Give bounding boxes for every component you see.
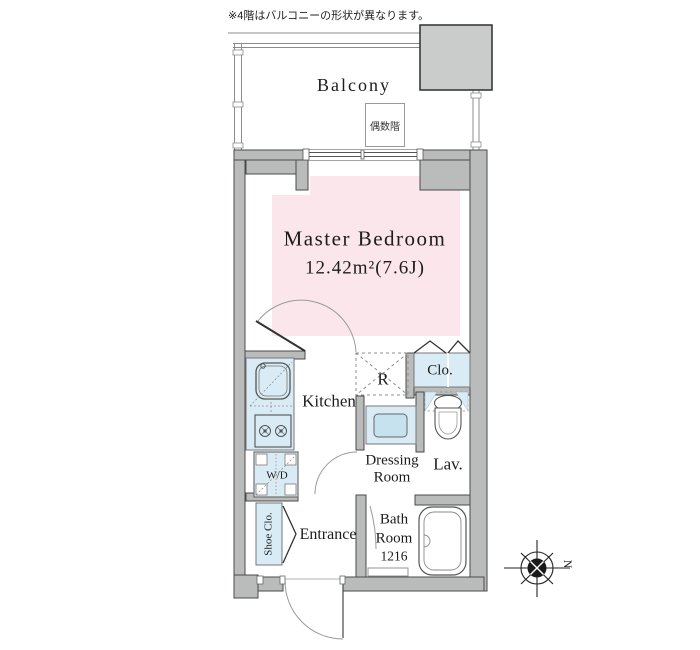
bedroom-window	[303, 149, 423, 160]
wall-entrance-bath	[356, 495, 366, 577]
master-bedroom-floor	[272, 176, 460, 336]
wall-hall-dressing	[356, 396, 364, 450]
compass-north-label: N	[561, 560, 575, 569]
balcony-floor-note: 偶数階	[370, 118, 400, 133]
balcony-utility-box	[420, 25, 492, 90]
bath-room-size: 1216	[381, 549, 408, 563]
dressing-room-label-line2: Room	[374, 471, 411, 486]
balcony-floor-note-box: 偶数階	[365, 103, 405, 147]
kitchen-counter	[246, 358, 294, 450]
wall-left	[234, 150, 245, 598]
wall-bath-north	[415, 495, 470, 505]
plan-note: ※4階はバルコニーの形状が異なります。	[228, 7, 429, 23]
bath-room-label-line1: Bath	[380, 513, 408, 528]
master-bedroom-area: 12.42m²(7.6J)	[305, 259, 425, 278]
toilet	[435, 396, 462, 440]
washbasin	[366, 406, 416, 444]
closet-bifold-doors	[414, 341, 470, 353]
shoe-closet-label: Shoe Clo.	[264, 512, 275, 555]
floor-plan: N ※4階はバルコニーの形状が異なります。 Balcony 偶数階 Master…	[0, 0, 700, 650]
lavatory-fixtures	[425, 392, 468, 439]
wall-r-closet	[406, 353, 414, 398]
balcony-label: Balcony	[317, 76, 391, 94]
shoe-closet-door-mark	[283, 506, 296, 563]
dressing-room-label-line1: Dressing	[365, 454, 418, 469]
lavatory-label: Lav.	[433, 456, 463, 473]
wall-bottom-left-block	[234, 575, 258, 598]
master-bedroom-label: Master Bedroom	[284, 229, 447, 250]
wall-step-top-left	[296, 160, 308, 190]
dressing-room-door	[315, 452, 357, 494]
bath-room-label-line2: Room	[376, 532, 413, 547]
wall-right	[470, 150, 487, 591]
entrance-label: Entrance	[300, 527, 357, 543]
compass: N	[504, 540, 575, 597]
wall-dressing-lav	[416, 392, 424, 452]
refrigerator-label: R	[377, 371, 388, 388]
kitchen-label: Kitchen	[302, 393, 356, 410]
bath-threshold	[368, 568, 408, 576]
bathtub	[419, 507, 466, 575]
closet-label: Clo.	[427, 364, 452, 379]
washer-dryer-label: W/D	[266, 471, 287, 482]
floor-plan-drawing: N	[0, 0, 700, 650]
wall-bottom-right	[343, 577, 484, 591]
